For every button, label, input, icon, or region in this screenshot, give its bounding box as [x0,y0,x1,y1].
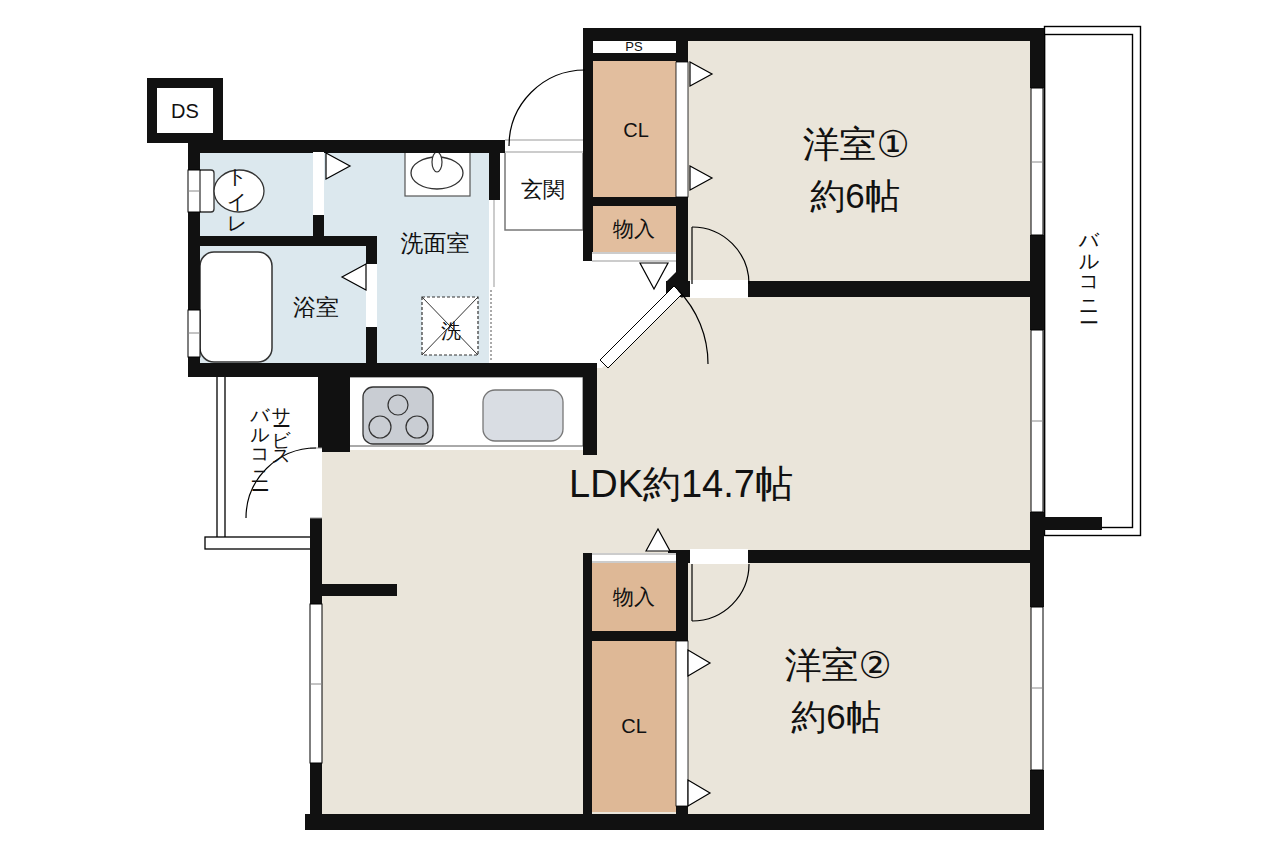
label-genkan: 玄関 [521,178,565,201]
sink-icon [483,390,563,441]
label-senmen: 洗面室 [401,231,470,255]
label-service-balcony: サービス バルコニー [250,394,293,480]
label-cl-bottom: CL [621,716,647,737]
label-ldk: LDK約14.7帖 [569,465,793,505]
ldk-right-window-icon [1031,330,1043,512]
label-yoshitsu1: 洋室① [802,126,909,165]
floor-plan: DS PS CL 物入 玄関 トイレ 洗面室 浴室 洗 洋室① 約6帖 LDK約… [0,0,1280,850]
label-washer: 洗 [441,321,461,342]
label-balcony: バルコニー [1079,217,1100,313]
ldk-left-window-icon [310,604,322,763]
yoshitsu1-window-icon [1031,88,1043,235]
label-ps: PS [625,40,642,54]
stove-icon [363,387,433,444]
label-ds: DS [171,101,199,122]
label-monoiri-bottom: 物入 [613,586,655,608]
label-yokushitsu: 浴室 [293,295,339,319]
bathtub-icon [200,252,272,362]
label-cl-top: CL [623,120,649,141]
monoiri-top-door-icon [640,263,668,289]
label-monoiri-top: 物入 [613,218,655,240]
label-yoshitsu1-size: 約6帖 [810,178,899,215]
label-yoshitsu2-size: 約6帖 [791,699,880,736]
toilet-window-icon [188,170,200,212]
label-yoshitsu2: 洋室② [784,647,891,686]
yoshitsu2-window-icon [1031,607,1043,770]
genkan-door-arc [509,70,585,146]
label-toilet: トイレ [227,154,248,225]
washbasin-icon [405,147,470,196]
bath-window-icon [188,310,200,357]
